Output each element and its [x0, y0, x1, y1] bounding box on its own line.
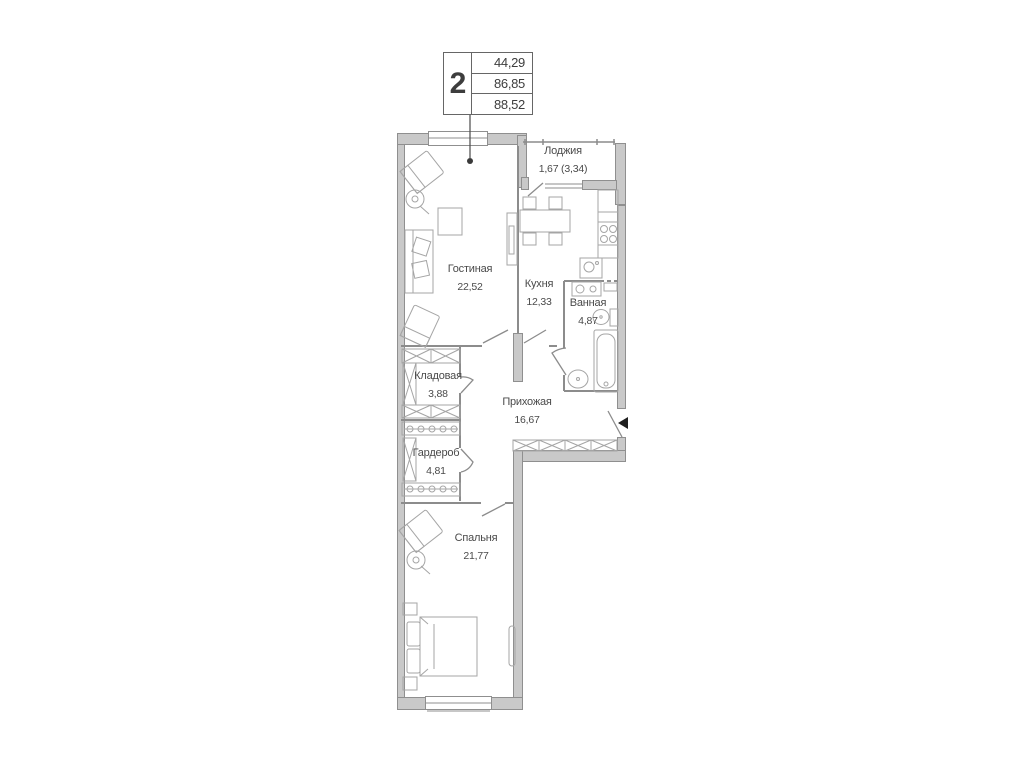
bath-shelf: [604, 283, 617, 291]
armchair-bedroom: [399, 510, 443, 553]
kitchen-table: [520, 210, 570, 232]
title-block-areas: 44,29 86,85 88,52: [472, 53, 532, 114]
rooms-count: 2: [444, 53, 472, 114]
title-area-value: 44,29: [472, 53, 532, 74]
coffee-table: [438, 208, 462, 235]
title-block: 2 44,29 86,85 88,52: [443, 52, 533, 115]
stove-icon: [601, 226, 617, 243]
kitchen-opening-mark: [524, 330, 546, 343]
storage-door-leaf: [461, 377, 473, 393]
wardrobe-door-leaf: [461, 449, 473, 472]
tv-stand: [507, 213, 517, 265]
room-label-bathroom: Ванная 4,87: [570, 298, 606, 327]
floor-lamp-bedroom: [407, 551, 430, 574]
armchair-living-bottom: [400, 305, 440, 348]
room-label-loggia: Лоджия 1,67 (3,34): [539, 146, 588, 175]
hallway-closet: [513, 440, 617, 451]
entrance-arrow-icon: [618, 417, 628, 429]
nightstand-bottom: [403, 677, 417, 690]
room-label-bedroom: Спальня 21,77: [455, 533, 498, 562]
kitchen-sink-icon: [580, 258, 602, 278]
kitchen-chairs: [523, 197, 562, 245]
title-leader-line: [467, 115, 473, 164]
window-mullions: [425, 138, 492, 711]
floorplan-linework: [0, 0, 1024, 768]
loggia-door-leaf: [528, 183, 543, 196]
armchair-living-top: [400, 151, 444, 194]
bathroom-door-leaf: [552, 348, 566, 375]
room-label-hallway: Прихожая 16,67: [502, 397, 551, 426]
kitchen-counter: [598, 190, 618, 258]
room-label-living-room: Гостиная 22,52: [448, 264, 493, 293]
room-label-storage: Кладовая 3,88: [414, 371, 462, 400]
washbasin-icon: [568, 370, 588, 388]
bathtub-icon: [594, 330, 618, 392]
washing-machine-icon: [572, 282, 601, 296]
sofa: [405, 230, 433, 293]
bedroom-door-leaf: [482, 504, 505, 516]
title-area-value: 88,52: [472, 94, 532, 114]
bed: [407, 617, 477, 676]
floorplan-canvas: Лоджия 1,67 (3,34) Гостиная 22,52 Кухня …: [0, 0, 1024, 768]
living-opening-mark: [483, 330, 508, 343]
title-area-value: 86,85: [472, 74, 532, 95]
room-label-kitchen: Кухня 12,33: [525, 279, 553, 308]
radiator-bedroom: [509, 626, 515, 666]
room-label-wardrobe: Гардероб 4,81: [413, 448, 460, 477]
nightstand-top: [403, 603, 417, 615]
